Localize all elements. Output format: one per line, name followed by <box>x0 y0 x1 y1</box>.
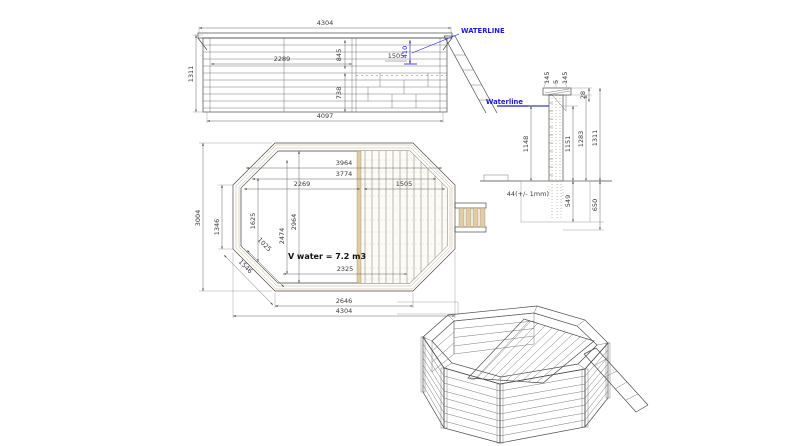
plan-dim-inner-width: 3964 <box>336 159 353 167</box>
plan-deck <box>357 151 449 283</box>
plan-dim-corner-inner: 1025 <box>256 236 273 253</box>
plan-dim-bottom-flat: 2646 <box>336 297 353 305</box>
perspective-3d-view <box>397 302 648 443</box>
elevation-dim-depth-top: 845 <box>335 49 343 61</box>
deck-3d <box>468 319 594 383</box>
plan-dim-water-width: 3774 <box>336 170 353 178</box>
section-dim-foundation: 650 <box>591 199 599 211</box>
plan-dim-water-height: 2474 <box>278 228 286 245</box>
elevation-planks <box>203 45 447 108</box>
section-dim-cap-front: 145 <box>543 72 551 84</box>
plan-view: 3964 3774 2269 1505 2964 2474 1625 1025 … <box>194 143 486 318</box>
section-dim-wall-upper: 1283 <box>577 131 585 148</box>
section-wall-thickness-label: 44(+/- 1mm) <box>507 190 549 198</box>
plan-volume-label: V water = 7.2 m3 <box>288 252 366 261</box>
plan-dim-overall-height: 3004 <box>194 210 202 227</box>
elevation-waterline-annotation: 410 WATERLINE <box>401 27 505 64</box>
elevation-view: 4304 4097 1311 2289 845 738 1505 410 WAT… <box>187 19 505 123</box>
elevation-waterline-label: WATERLINE <box>461 27 505 35</box>
plan-dim-overall-width: 4304 <box>336 307 353 315</box>
pool-technical-drawing: 4304 4097 1311 2289 845 738 1505 410 WAT… <box>0 0 794 446</box>
elevation-dim-waterline-offset: 410 <box>401 46 409 58</box>
elevation-dim-overall-height: 1311 <box>187 66 195 83</box>
section-waterline: Waterline <box>486 98 549 106</box>
section-dim-cap-back: 145 <box>561 72 569 84</box>
elevation-dim-inner-left: 2289 <box>274 55 291 63</box>
section-dim-cap-gap: 5 <box>552 80 560 84</box>
plan-dim-left-to-deck: 2269 <box>294 180 311 188</box>
plan-dim-inner-height: 2964 <box>290 214 298 231</box>
plan-dim-corner-outer: 1546 <box>237 258 254 275</box>
section-dim-buried: 549 <box>564 195 572 207</box>
plan-dim-deck-width: 1505 <box>396 180 413 188</box>
elevation-dim-base-width: 4097 <box>317 112 334 120</box>
section-detail-view: 145 5 145 28 Waterline 1148 1151 1283 13… <box>480 72 612 230</box>
plan-dim-side-flat: 1346 <box>213 219 221 236</box>
plan-dim-left-opening: 1625 <box>249 213 257 230</box>
elevation-dim-overall-width: 4304 <box>317 19 334 27</box>
plan-dim-floor-width: 2325 <box>337 265 354 273</box>
section-dim-wall-inner: 1151 <box>564 136 572 153</box>
plan-ladder <box>455 203 486 232</box>
section-dim-water-depth: 1148 <box>522 136 530 153</box>
section-foundation-outline <box>521 181 590 222</box>
section-waterline-label: Waterline <box>486 98 524 106</box>
technical-drawing-page: 4304 4097 1311 2289 845 738 1505 410 WAT… <box>0 0 794 446</box>
elevation-dim-depth-bottom: 738 <box>335 87 343 99</box>
section-dim-wall-total: 1311 <box>591 130 599 147</box>
elevation-top-cap <box>198 33 452 38</box>
rim-inner <box>432 313 597 377</box>
